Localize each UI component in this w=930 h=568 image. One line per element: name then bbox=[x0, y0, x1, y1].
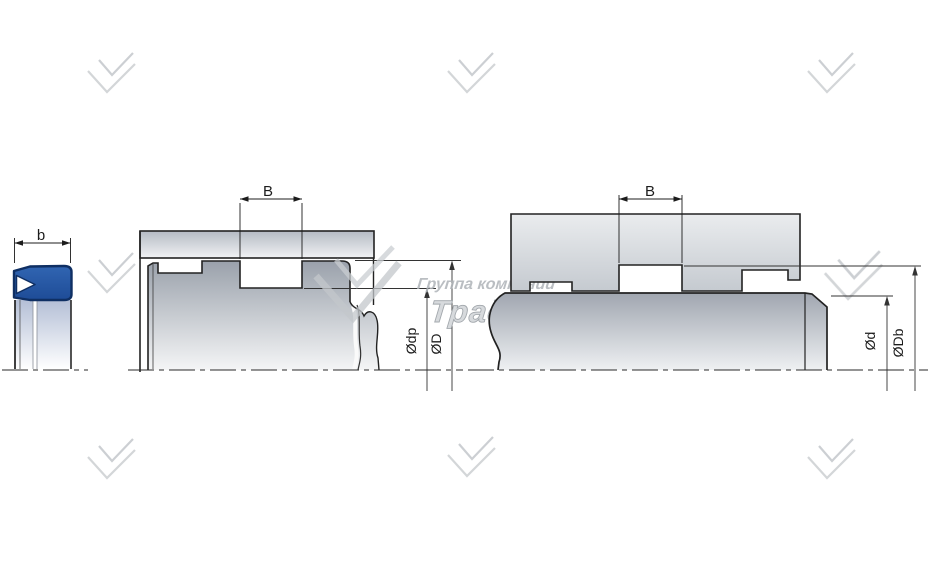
rod-groove-width-label: B bbox=[645, 183, 655, 200]
watermark-chevron-icon bbox=[448, 53, 495, 92]
watermark-chevron-icon bbox=[825, 251, 882, 299]
seal-profile-figure: b bbox=[2, 227, 88, 370]
shaft-section-right bbox=[37, 300, 71, 369]
watermark-chevron-icon bbox=[88, 253, 135, 292]
cylinder-housing bbox=[140, 231, 374, 258]
housing-block bbox=[511, 214, 800, 291]
piston-groove-width-label: B bbox=[263, 183, 273, 200]
piston-groove-diameter-label: Ødp bbox=[403, 328, 419, 355]
piston-body bbox=[148, 261, 379, 370]
watermark-chevron-icon bbox=[808, 53, 855, 92]
rod-body bbox=[489, 293, 827, 370]
technical-drawing: b B Ødp bbox=[0, 0, 930, 568]
watermark-chevron-icon bbox=[448, 437, 495, 476]
bore-diameter-label: ØD bbox=[428, 334, 444, 355]
rod-diameter-label: Ød bbox=[862, 332, 878, 351]
seal-width-label: b bbox=[37, 227, 45, 244]
rod-groove-diameter-label: ØDb bbox=[890, 328, 906, 357]
watermark-chevron-icon bbox=[88, 53, 135, 92]
piston-groove-figure: B Ødp ØD bbox=[128, 183, 463, 391]
watermark-chevron-icon bbox=[88, 439, 135, 478]
shaft-section-left bbox=[15, 300, 33, 369]
watermark-chevron-icon bbox=[808, 439, 855, 478]
technical-drawing-page: b B Ødp bbox=[0, 0, 930, 568]
